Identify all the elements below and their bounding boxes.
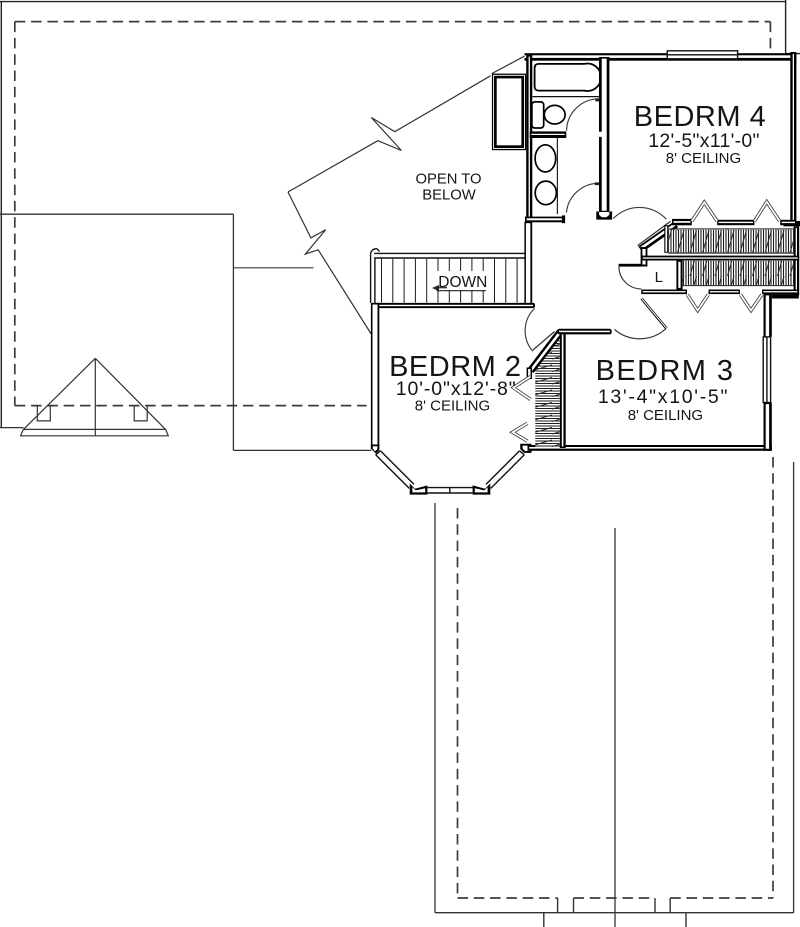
svg-text:DOWN: DOWN	[438, 274, 487, 291]
svg-text:8' CEILING: 8' CEILING	[415, 398, 490, 415]
svg-text:BEDRM 3: BEDRM 3	[596, 355, 735, 387]
svg-text:BELOW: BELOW	[422, 187, 475, 203]
svg-text:L: L	[655, 269, 663, 286]
svg-text:OPEN TO: OPEN TO	[415, 171, 481, 187]
svg-text:8' CEILING: 8' CEILING	[628, 407, 703, 424]
svg-text:BEDRM 4: BEDRM 4	[634, 101, 766, 133]
svg-text:8' CEILING: 8' CEILING	[666, 150, 741, 167]
svg-text:13'-4"x10'-5": 13'-4"x10'-5"	[598, 386, 729, 408]
svg-text:12'-5"x11'-0": 12'-5"x11'-0"	[648, 130, 760, 152]
